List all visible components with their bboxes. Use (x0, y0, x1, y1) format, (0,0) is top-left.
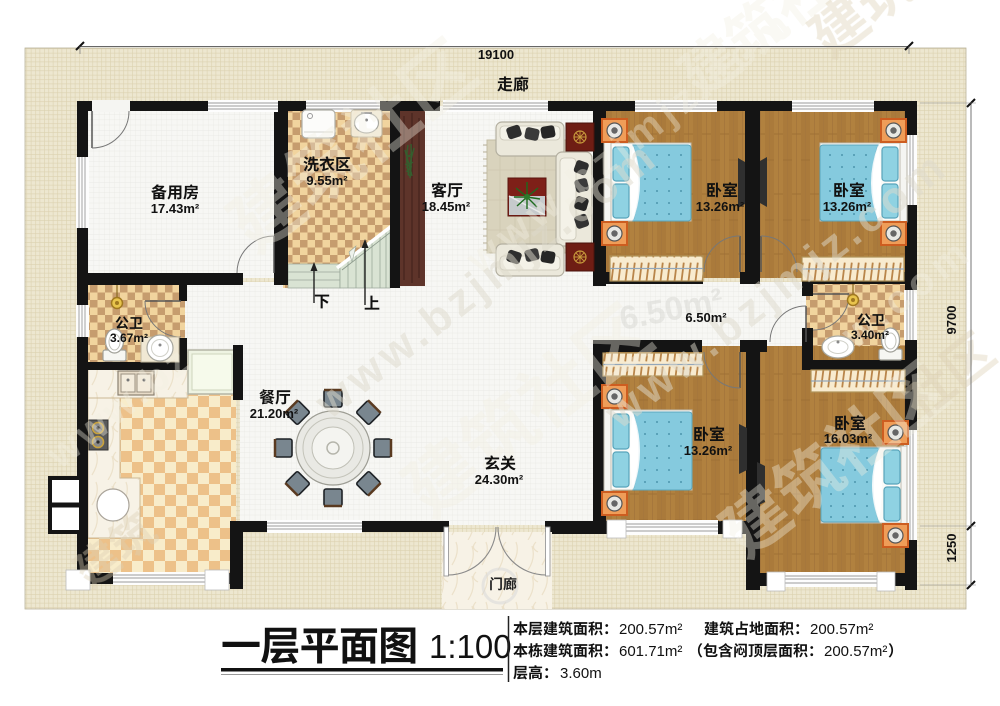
svg-text:200.57m²: 200.57m² (619, 621, 682, 638)
svg-text:6.50m²: 6.50m² (685, 310, 727, 325)
svg-text:21.20m²: 21.20m² (250, 406, 299, 421)
svg-text:1250: 1250 (944, 534, 959, 563)
svg-text:9700: 9700 (944, 306, 959, 335)
svg-text:16.03m²: 16.03m² (824, 431, 873, 446)
svg-text:13.26m²: 13.26m² (684, 443, 733, 458)
svg-text:24.30m²: 24.30m² (475, 472, 524, 487)
svg-text:19100: 19100 (478, 47, 514, 62)
svg-text:200.57m²: 200.57m² (824, 643, 887, 660)
svg-text:200.57m²: 200.57m² (810, 621, 873, 638)
svg-text:17.43m²: 17.43m² (151, 201, 200, 216)
svg-text:3.40m²: 3.40m² (851, 328, 889, 342)
svg-text:13.26m²: 13.26m² (696, 199, 745, 214)
svg-text:3.67m²: 3.67m² (110, 331, 148, 345)
svg-text:601.71m²: 601.71m² (619, 643, 682, 660)
svg-text:3.60m: 3.60m (560, 665, 602, 682)
svg-text:18.45m²: 18.45m² (422, 199, 471, 214)
svg-text:1:100: 1:100 (429, 628, 512, 665)
svg-text:9.55m²: 9.55m² (306, 173, 348, 188)
svg-text:13.26m²: 13.26m² (823, 199, 872, 214)
